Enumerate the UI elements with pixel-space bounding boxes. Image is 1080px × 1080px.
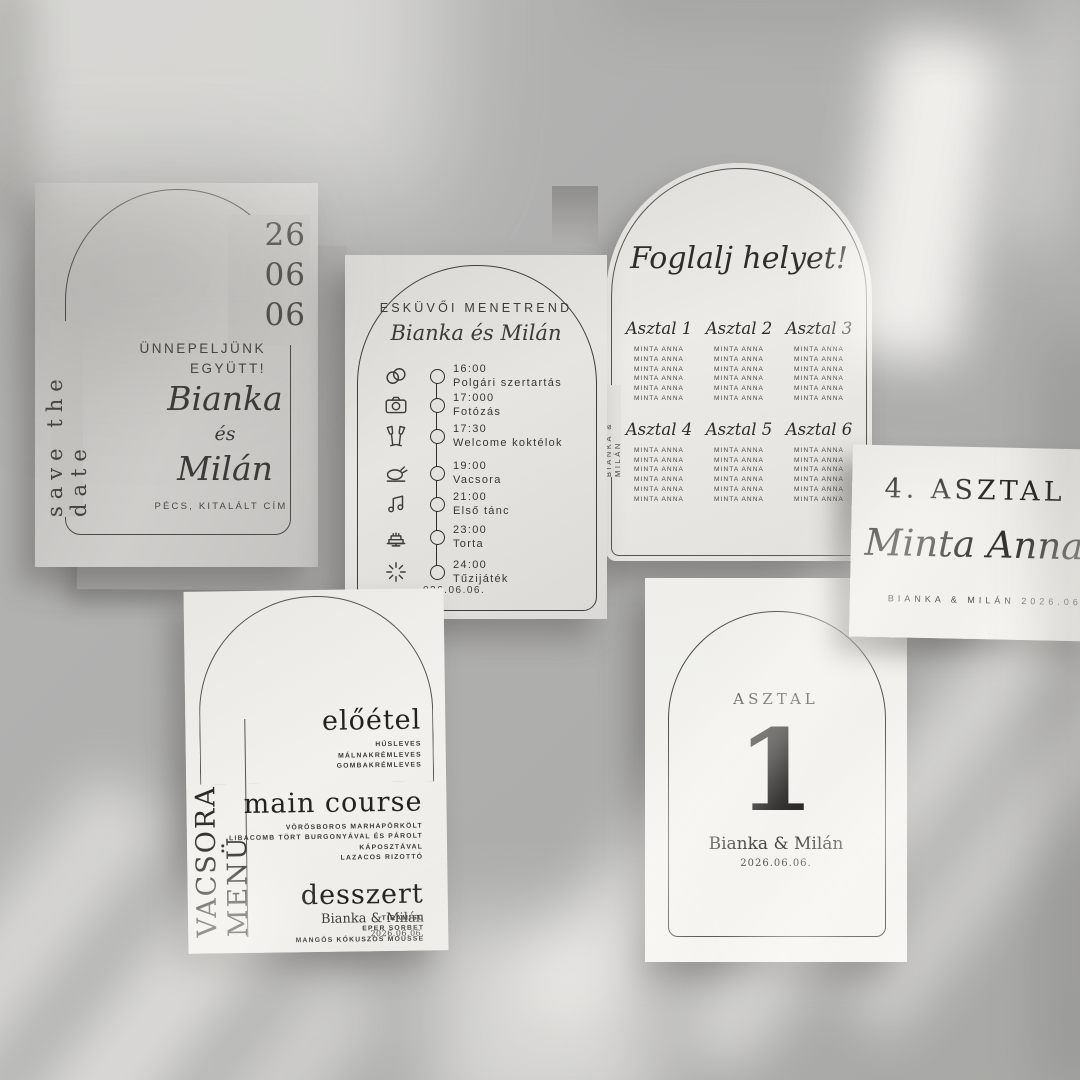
seating-guest-name: MINTA ANNA	[779, 475, 859, 485]
seating-guest-name: MINTA ANNA	[699, 345, 779, 355]
seating-guest-name: MINTA ANNA	[779, 485, 859, 495]
event-time: 24:00	[453, 559, 509, 573]
place-card-table: 4. ASZTAL	[852, 472, 1080, 508]
dinner-menu-card: VACSORA MENÜ előételHÚSLEVESMÁLNAKRÉMLEV…	[183, 588, 448, 954]
seating-guest-name: MINTA ANNA	[619, 345, 699, 355]
champagne-icon	[383, 423, 409, 449]
stationery-mockup-scene: 26 06 06 save the date ÜNNEPELJÜNK EGYÜT…	[0, 0, 1080, 1080]
event-text: 19:00 Vacsora	[453, 460, 502, 487]
timeline-dot	[430, 429, 445, 444]
rings-icon	[383, 363, 409, 389]
timeline-subtitle: Bianka és Milán	[345, 321, 607, 345]
seating-table: Asztal 3MINTA ANNAMINTA ANNAMINTA ANNAMI…	[779, 318, 859, 404]
seating-guest-name: MINTA ANNA	[699, 465, 779, 475]
event-text: 21:00 Első tánc	[453, 491, 510, 518]
event-label: Polgári szertartás	[453, 377, 562, 391]
event-time: 17:30	[453, 423, 563, 437]
seating-guest-name: MINTA ANNA	[619, 465, 699, 475]
event-text: 23:00 Torta	[453, 524, 487, 551]
menu-section: main courseVÖRÖSBOROS MARHAPÖRKÖLTLIBACO…	[200, 786, 423, 866]
event-time: 16:00	[453, 363, 562, 377]
seating-guest-name: MINTA ANNA	[619, 475, 699, 485]
menu-item: GOMBAKRÉMLEVES	[200, 761, 422, 775]
headline-line: ÜNNEPELJÜNK	[139, 339, 266, 359]
seating-guest-name: MINTA ANNA	[619, 374, 699, 384]
event-text: 16:00 Polgári szertartás	[453, 363, 562, 390]
seating-chart-title: Foglalj helyet!	[606, 241, 872, 276]
event-time: 21:00	[453, 491, 510, 505]
seating-guest-name: MINTA ANNA	[699, 456, 779, 466]
event-label: Welcome koktélok	[453, 437, 563, 451]
headline: ÜNNEPELJÜNK EGYÜTT!	[139, 339, 266, 379]
camera-icon	[383, 392, 409, 418]
seating-guest-name: MINTA ANNA	[779, 446, 859, 456]
date-line: 06	[228, 255, 306, 295]
event-label: Torta	[453, 538, 487, 552]
timeline-title: ESKÜVŐI MENETREND	[345, 301, 607, 315]
seating-guest-name: MINTA ANNA	[699, 475, 779, 485]
cake-icon	[383, 524, 409, 550]
seating-guest-name: MINTA ANNA	[699, 355, 779, 365]
place-card-footer: BIANKA & MILÁN 2026.06.06.	[888, 593, 1080, 608]
seating-table-name: Asztal 3	[779, 318, 859, 340]
seating-chart-card: BIANKA & MILÁN Foglalj helyet! Asztal 1M…	[606, 163, 872, 561]
timeline-dot	[430, 565, 445, 580]
date-line: 26	[228, 215, 306, 255]
timeline-dot	[430, 497, 445, 512]
seating-guest-name: MINTA ANNA	[779, 365, 859, 375]
seating-table: Asztal 2MINTA ANNAMINTA ANNAMINTA ANNAMI…	[699, 318, 779, 404]
date-line: 06	[228, 295, 306, 335]
event-label: Vacsora	[453, 474, 502, 488]
event-time: 17:000	[453, 392, 501, 406]
seating-guest-name: MINTA ANNA	[699, 365, 779, 375]
seating-table: Asztal 1MINTA ANNAMINTA ANNAMINTA ANNAMI…	[619, 318, 699, 404]
couple-names: Bianka & Milán	[645, 834, 907, 854]
seating-guest-name: MINTA ANNA	[699, 394, 779, 404]
event-label: Fotózás	[453, 406, 501, 420]
table-number: 1	[645, 706, 907, 837]
seating-guest-name: MINTA ANNA	[619, 384, 699, 394]
seating-guest-name: MINTA ANNA	[619, 485, 699, 495]
timeline-dot	[430, 530, 445, 545]
seating-guest-name: MINTA ANNA	[619, 355, 699, 365]
event-time: 19:00	[453, 460, 502, 474]
seating-table: Asztal 5MINTA ANNAMINTA ANNAMINTA ANNAMI…	[699, 419, 779, 505]
event-text: 17:000 Fotózás	[453, 392, 501, 419]
seating-guest-name: MINTA ANNA	[779, 384, 859, 394]
shadow-rectangle	[552, 186, 598, 244]
menu-section-title: előétel	[199, 705, 421, 740]
seating-guest-name: MINTA ANNA	[619, 456, 699, 466]
seating-guest-name: MINTA ANNA	[699, 485, 779, 495]
seating-guest-name: MINTA ANNA	[619, 365, 699, 375]
timeline-dot	[430, 466, 445, 481]
seating-guest-name: MINTA ANNA	[779, 345, 859, 355]
fireworks-icon	[383, 559, 409, 585]
seating-guest-name: MINTA ANNA	[779, 456, 859, 466]
menu-section-title: desszert	[202, 878, 424, 913]
seating-guest-name: MINTA ANNA	[699, 384, 779, 394]
venue-text: PÉCS, KITALÁLT CÍM	[131, 501, 311, 512]
menu-footer-date: 2026.06.06.	[370, 929, 424, 939]
seating-table-name: Asztal 4	[619, 419, 699, 441]
seating-table: Asztal 6MINTA ANNAMINTA ANNAMINTA ANNAMI…	[779, 419, 859, 505]
groom-name: Milán	[145, 449, 305, 489]
couple-names: Bianka és Milán	[145, 379, 305, 489]
seating-table-name: Asztal 5	[699, 419, 779, 441]
menu-footer-names: Bianka & Milán	[321, 911, 424, 927]
seating-table-name: Asztal 2	[699, 318, 779, 340]
headline-line: EGYÜTT!	[139, 359, 266, 379]
event-label: Első tánc	[453, 505, 510, 519]
dinner-icon	[383, 460, 409, 486]
seating-guest-name: MINTA ANNA	[779, 394, 859, 404]
seating-guest-name: MINTA ANNA	[699, 495, 779, 505]
seating-guest-name: MINTA ANNA	[779, 355, 859, 365]
wedding-date: 2026.06.06.	[645, 858, 907, 869]
menu-item: LAZACOS RIZOTTÓ	[201, 853, 423, 867]
seating-table-name: Asztal 6	[779, 419, 859, 441]
conjunction: és	[145, 419, 305, 449]
timeline-dot	[430, 369, 445, 384]
wedding-date-block: 26 06 06	[228, 215, 310, 345]
seating-guest-name: MINTA ANNA	[779, 495, 859, 505]
seating-table: Asztal 4MINTA ANNAMINTA ANNAMINTA ANNAMI…	[619, 419, 699, 505]
bride-name: Bianka	[145, 379, 305, 419]
wedding-timeline-card: ESKÜVŐI MENETREND Bianka és Milán 16:00 …	[345, 255, 607, 619]
event-time: 23:00	[453, 524, 487, 538]
music-icon	[383, 491, 409, 517]
seating-guest-name: MINTA ANNA	[699, 446, 779, 456]
event-text: 24:00 Tűzijáték	[453, 559, 509, 586]
menu-section: előételHÚSLEVESMÁLNAKRÉMLEVESGOMBAKRÉMLE…	[199, 705, 422, 775]
save-the-date-card: 26 06 06 save the date ÜNNEPELJÜNK EGYÜT…	[35, 183, 318, 567]
seating-guest-name: MINTA ANNA	[619, 394, 699, 404]
event-text: 17:30 Welcome koktélok	[453, 423, 563, 450]
seating-guest-name: MINTA ANNA	[779, 374, 859, 384]
save-the-date-vertical-title: save the date	[51, 321, 83, 517]
seating-table-name: Asztal 1	[619, 318, 699, 340]
seating-guest-name: MINTA ANNA	[699, 374, 779, 384]
seating-guest-name: MINTA ANNA	[619, 446, 699, 456]
place-card: 4. ASZTAL Minta Anna BIANKA & MILÁN 2026…	[849, 444, 1080, 641]
timeline-dot	[430, 398, 445, 413]
seating-guest-name: MINTA ANNA	[779, 465, 859, 475]
seating-guest-name: MINTA ANNA	[619, 495, 699, 505]
menu-section-title: main course	[200, 786, 422, 821]
event-label: Tűzijáték	[453, 573, 509, 587]
guest-name: Minta Anna	[851, 520, 1080, 568]
seating-grid: Asztal 1MINTA ANNAMINTA ANNAMINTA ANNAMI…	[619, 318, 859, 505]
